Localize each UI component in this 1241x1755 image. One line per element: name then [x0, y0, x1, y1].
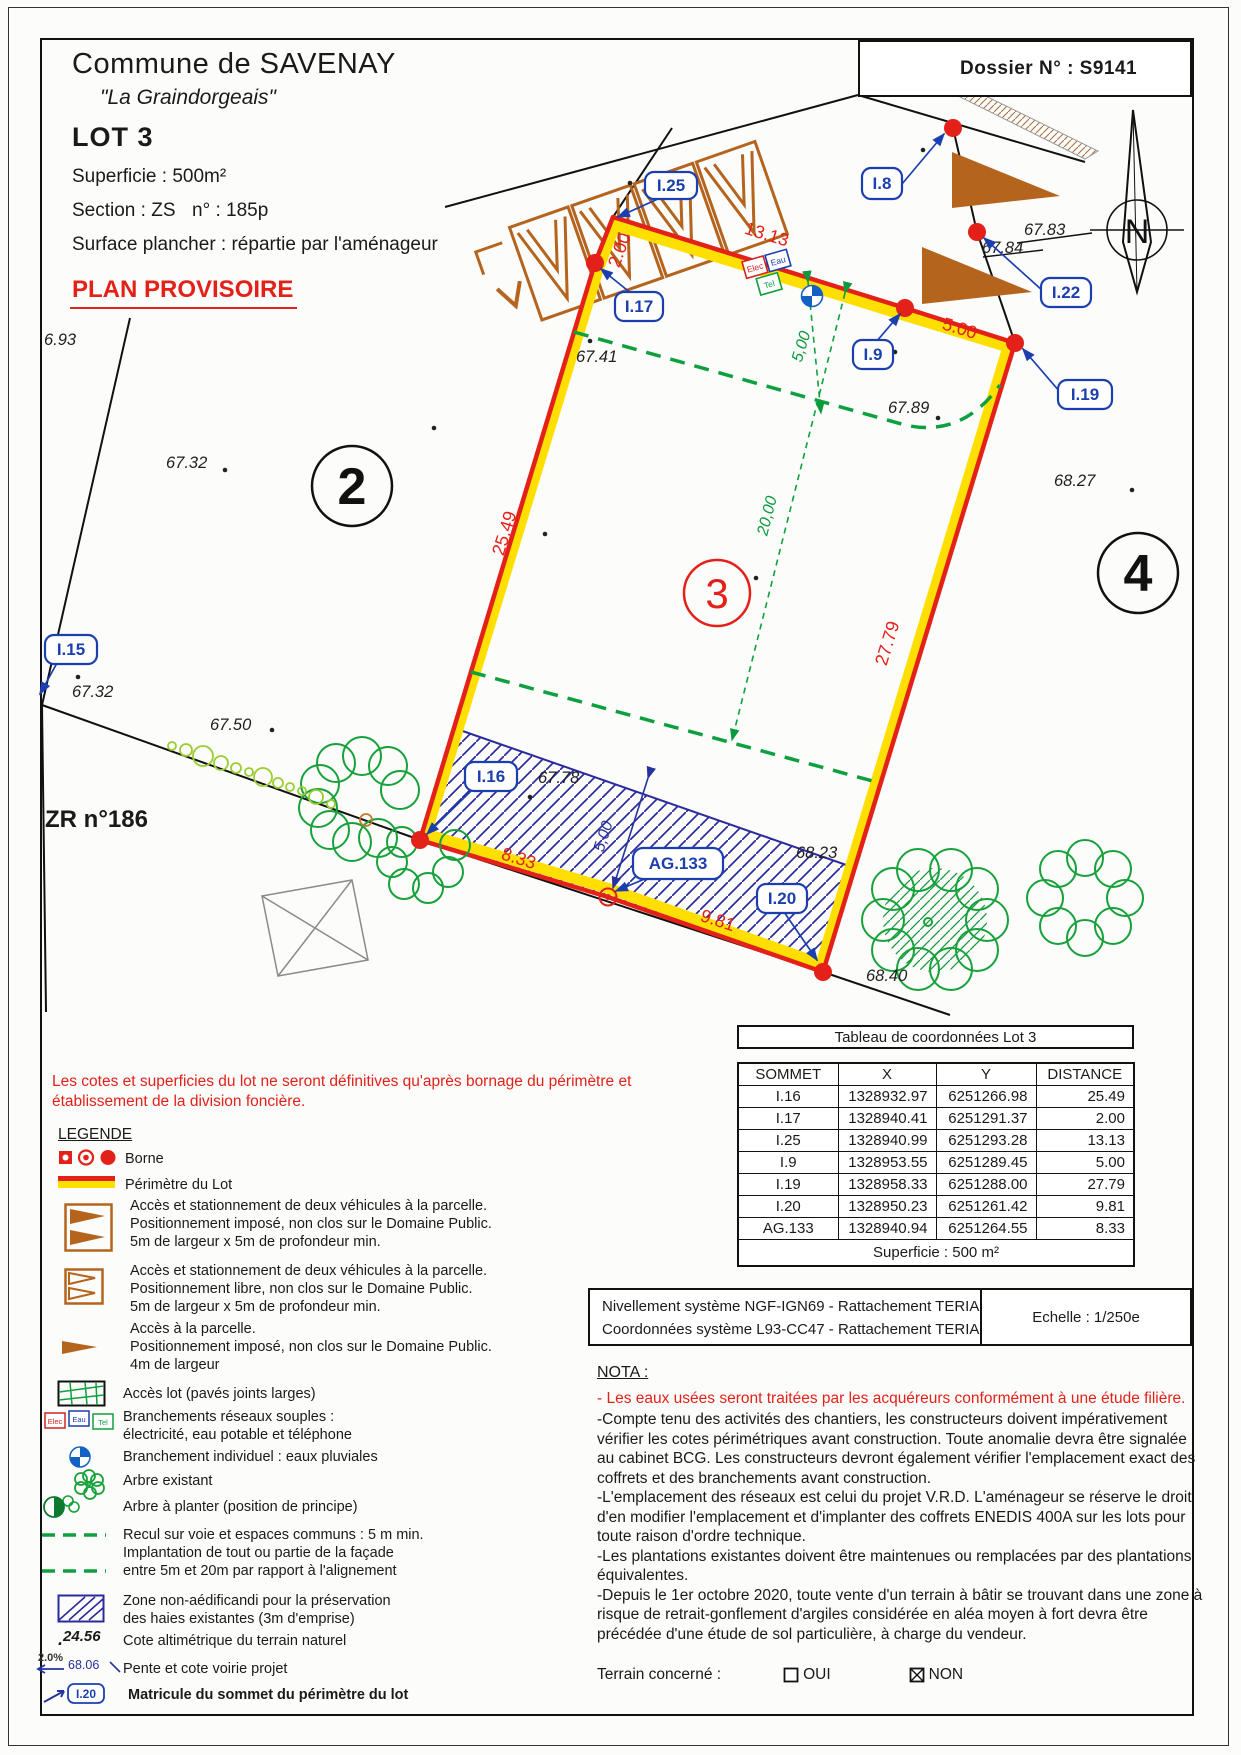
label-i8: I.8 — [873, 174, 892, 193]
table-row: I.171328940.416251291.372.00 — [738, 1108, 1134, 1130]
setback-lines — [471, 282, 1000, 783]
coord-table-title: Tableau de coordonnées Lot 3 — [737, 1025, 1134, 1049]
legend-paved-access: Accès lot (pavés joints larges) — [123, 1385, 316, 1403]
access-imposed-icon — [64, 1203, 114, 1253]
legend-existing-tree: Arbre existant — [123, 1472, 212, 1490]
network-boxes-icon: Elec Eau Tel — [44, 1410, 116, 1432]
table-row: I.91328953.556251289.455.00 — [738, 1152, 1134, 1174]
legend-perimeter: Périmètre du Lot — [125, 1176, 232, 1194]
provisional-plan-stamp: PLAN PROVISOIRE — [70, 276, 297, 309]
svg-text:4: 4 — [1124, 545, 1153, 603]
terrain-row: Terrain concerné : OUI NON — [597, 1666, 963, 1684]
elev-6-93: 6.93 — [44, 331, 77, 349]
checkbox-unchecked-icon — [783, 1667, 799, 1683]
legend-access-imposed-3: 5m de largeur x 5m de profondeur min. — [130, 1233, 492, 1251]
label-i20: I.20 — [768, 889, 796, 908]
legend-setback-2: Implantation de tout ou partie de la faç… — [123, 1544, 424, 1562]
lot-area: Superficie : 500m² — [72, 166, 226, 188]
table-footer: Superficie : 500 m² — [738, 1240, 1134, 1267]
legend-access-free-3: 5m de largeur x 5m de profondeur min. — [130, 1298, 487, 1316]
label-i17: I.17 — [625, 297, 653, 316]
elev-68-40: 68.40 — [866, 967, 908, 985]
tree-to-plant-icon — [40, 1492, 82, 1522]
hedge-circles — [168, 742, 372, 826]
setback-dash-icon-2 — [42, 1566, 108, 1576]
crossed-square-structure — [262, 880, 368, 976]
scale-label: Echelle : 1/250e — [980, 1290, 1190, 1344]
elev-67-41: 67.41 — [576, 348, 617, 366]
slope-icon: 2.0% 68.06 — [36, 1652, 121, 1680]
col-distance: DISTANCE — [1036, 1063, 1134, 1086]
legend-rainwater: Branchement individuel : eaux pluviales — [123, 1448, 378, 1466]
table-row: AG.1331328940.946251264.558.33 — [738, 1218, 1134, 1240]
svg-text:Tel: Tel — [98, 1418, 108, 1427]
legend-spot-height: Cote altimétrique du terrain naturel — [123, 1632, 346, 1650]
borne-icons — [58, 1148, 120, 1168]
col-x: X — [838, 1063, 936, 1086]
svg-text:3: 3 — [705, 570, 728, 617]
coordinate-system: Coordonnées système L93-CC47 - Rattachem… — [602, 1318, 980, 1341]
legend-access-imposed-2: Positionnement imposé, non clos sur le D… — [130, 1215, 492, 1233]
elev-67-50: 67.50 — [210, 716, 252, 734]
perimeter-icon — [58, 1174, 118, 1189]
nota-red-line: - Les eaux usées seront traitées par les… — [597, 1390, 1185, 1408]
legend-access-imposed-1: Accès et stationnement de deux véhicules… — [130, 1197, 492, 1215]
coordinates-table: SOMMET X Y DISTANCE I.161328932.97625126… — [737, 1062, 1135, 1267]
dim-27-79: 27.79 — [871, 619, 903, 668]
access-free-icon — [64, 1268, 106, 1306]
legend-access-parcel-3: 4m de largeur — [130, 1356, 492, 1374]
svg-text:Eau: Eau — [72, 1415, 85, 1424]
legend-setback-3: entre 5m et 20m par rapport à l'aligneme… — [123, 1562, 424, 1580]
dim-depth-20: 20,00 — [754, 494, 780, 538]
setback-dash-icon-1 — [42, 1530, 108, 1540]
col-y: Y — [936, 1063, 1036, 1086]
legend-zone-1: Zone non-aédificandi pour la préservatio… — [123, 1592, 391, 1610]
legend-access-parcel-2: Positionnement imposé, non clos sur le D… — [130, 1338, 492, 1356]
leveling-system: Nivellement système NGF-IGN69 - Rattache… — [602, 1295, 980, 1318]
label-i19: I.19 — [1071, 385, 1099, 404]
floor-area-note: Surface plancher : répartie par l'aménag… — [72, 234, 438, 256]
legend-matricule: Matricule du sommet du périmètre du lot — [128, 1686, 408, 1704]
svg-text:I.20: I.20 — [76, 1687, 96, 1701]
elev-67-89: 67.89 — [888, 399, 929, 417]
parcel-4-badge: 4 — [1098, 533, 1178, 613]
checkbox-checked-icon — [909, 1667, 925, 1683]
elev-67-32b: 67.32 — [72, 683, 113, 701]
legend-setback-1: Recul sur voie et espaces communs : 5 m … — [123, 1526, 424, 1544]
access-parcel-icon — [62, 1340, 100, 1356]
parcel-2-badge: 2 — [312, 446, 392, 526]
rainwater-icon — [68, 1445, 92, 1469]
legend-networks-1: Branchements réseaux souples : — [123, 1408, 352, 1426]
label-i16: I.16 — [477, 767, 505, 786]
label-i25: I.25 — [657, 176, 685, 195]
table-row: I.251328940.996251293.2813.13 — [738, 1130, 1134, 1152]
paved-access-icon — [57, 1380, 107, 1408]
legend-access-free-2: Positionnement libre, non clos sur le Do… — [130, 1280, 487, 1298]
legend-access-free-1: Accès et stationnement de deux véhicules… — [130, 1262, 487, 1280]
rainwater-connection-icon — [802, 286, 823, 307]
disclaimer: Les cotes et superficies du lot ne seron… — [52, 1072, 631, 1112]
label-i22: I.22 — [1052, 283, 1080, 302]
legend-networks-2: électricité, eau potable et téléphone — [123, 1426, 352, 1444]
table-row: I.191328958.336251288.0027.79 — [738, 1174, 1134, 1196]
legend-borne: Borne — [125, 1150, 164, 1168]
cadastral-number: n° : 185p — [192, 200, 268, 222]
label-i9: I.9 — [864, 345, 883, 364]
zr-parcel-label: ZR n°186 — [45, 806, 148, 834]
table-header-row: SOMMET X Y DISTANCE — [738, 1063, 1134, 1086]
legend-tree-to-plant: Arbre à planter (position de principe) — [123, 1498, 358, 1516]
oui-label: OUI — [803, 1666, 831, 1684]
non-label: NON — [929, 1666, 963, 1684]
elev-67-32a: 67.32 — [166, 454, 207, 472]
table-row: I.161328932.976251266.9825.49 — [738, 1086, 1134, 1108]
cadastral-section: Section : ZS — [72, 200, 176, 222]
north-letter: N — [1125, 213, 1150, 251]
legend-access-parcel-1: Accès à la parcelle. — [130, 1320, 492, 1338]
elev-68-27: 68.27 — [1054, 472, 1096, 490]
non-aedificandi-icon — [57, 1594, 107, 1624]
parcel-3-badge: 3 — [684, 560, 750, 626]
dossier-number: Dossier N° : S9141 — [858, 40, 1192, 97]
lieu-dit: "La Graindorgeais" — [100, 86, 276, 110]
label-ag133: AG.133 — [649, 854, 708, 873]
existing-tree-far-right — [1027, 840, 1143, 956]
col-sommet: SOMMET — [738, 1063, 838, 1086]
elev-67-83: 67.83 — [1024, 221, 1066, 239]
elev-67-78: 67.78 — [538, 769, 580, 787]
elev-68-23: 68.23 — [796, 844, 838, 862]
matricule-icon: I.20 — [42, 1682, 110, 1706]
lot-number: LOT 3 — [72, 122, 154, 153]
nota-paragraphs: -Compte tenu des activités des chantiers… — [597, 1410, 1202, 1644]
dim-5-00: 5.00 — [940, 314, 979, 343]
label-i15: I.15 — [57, 640, 85, 659]
dim-recul-5: 5,00 — [789, 329, 814, 364]
survey-plan-page: Elec Eau Tel — [0, 0, 1241, 1755]
nota-title: NOTA : — [597, 1364, 648, 1382]
terrain-label: Terrain concerné : — [597, 1666, 721, 1684]
table-row: I.201328950.236251261.429.81 — [738, 1196, 1134, 1218]
survey-reference-box: Nivellement système NGF-IGN69 - Rattache… — [588, 1288, 1192, 1346]
page-title: Commune de SAVENAY — [72, 48, 396, 81]
north-arrow: N — [1090, 110, 1184, 292]
svg-text:2: 2 — [338, 458, 367, 516]
table-footer-row: Superficie : 500 m² — [738, 1240, 1134, 1267]
legend-zone-2: des haies existantes (3m d'emprise) — [123, 1610, 391, 1628]
svg-text:Elec: Elec — [48, 1417, 63, 1426]
legend-title: LEGENDE — [58, 1126, 132, 1144]
spot-height-icon: .24.56 — [58, 1628, 101, 1645]
legend-slope: Pente et cote voirie projet — [123, 1660, 287, 1678]
